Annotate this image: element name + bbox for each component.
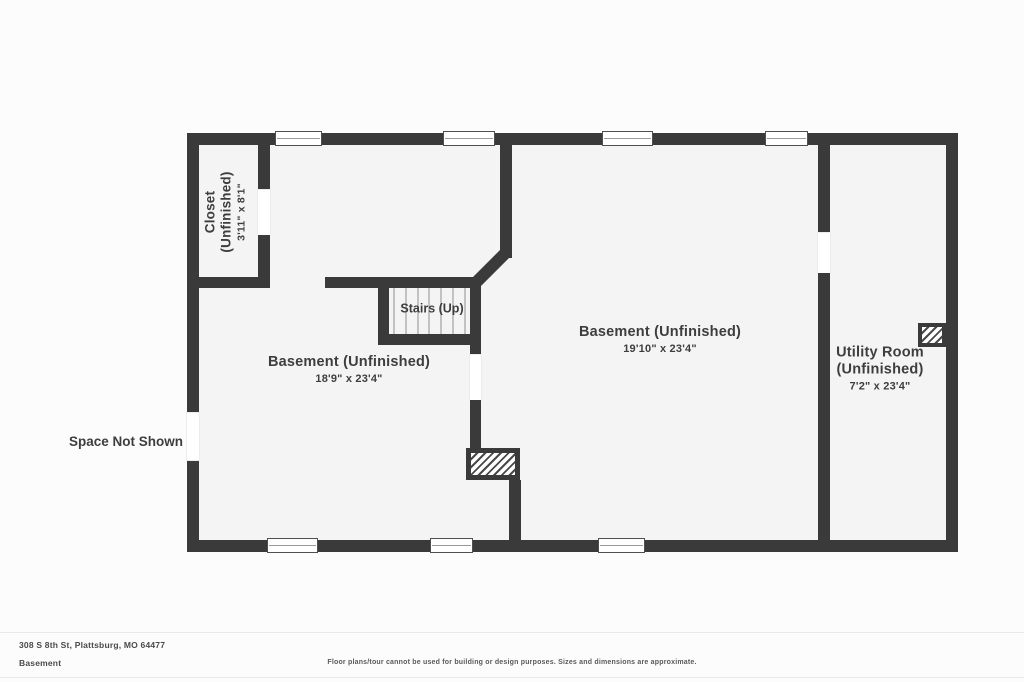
room-name: Basement (Unfinished): [579, 324, 741, 341]
space-not-shown-label: Space Not Shown: [69, 434, 183, 450]
room-status: (Unfinished): [218, 171, 234, 252]
window: [602, 131, 653, 146]
wall-stairs-right: [470, 277, 481, 355]
chimney-hatch-box: [466, 448, 520, 480]
room-status: (Unfinished): [836, 362, 924, 379]
utility-hatch-box: [918, 323, 946, 347]
wall-exterior-left-upper: [187, 133, 199, 413]
room-dims: 19'10" x 23'4": [579, 343, 741, 356]
room-name: Basement (Unfinished): [268, 354, 430, 371]
room-dims: 18'9" x 23'4": [268, 373, 430, 386]
wall-utility-divider-upper: [818, 145, 830, 233]
window-pane: [432, 545, 471, 547]
property-address: 308 S 8th St, Plattsburg, MO 64477: [19, 640, 165, 650]
door-opening-basement: [470, 355, 481, 400]
window-pane: [767, 138, 806, 140]
window: [598, 538, 645, 553]
door-opening-utility: [818, 233, 830, 273]
window-pane: [269, 545, 316, 547]
window: [430, 538, 473, 553]
wall-closet-bottom: [187, 277, 270, 288]
stair-tread: [393, 288, 395, 334]
wall-mid-upper-vertical: [500, 145, 512, 258]
wall-exterior-left-lower: [187, 460, 199, 552]
floor-plan-page: Closet (Unfinished) 3'11" x 8'1" Basemen…: [0, 0, 1024, 682]
window: [765, 131, 808, 146]
wall-stairs-top: [325, 277, 481, 288]
window-pane: [277, 138, 320, 140]
window: [275, 131, 322, 146]
window-pane: [600, 545, 643, 547]
disclaimer-text: Floor plans/tour cannot be used for buil…: [0, 659, 1024, 666]
room-dims: 7'2" x 23'4": [836, 381, 924, 394]
wall-mid-lower-upper-seg: [470, 400, 481, 448]
room-label-basement-main: Basement (Unfinished) 19'10" x 23'4": [579, 324, 741, 356]
wall-mid-lower-bottom-seg: [509, 480, 521, 540]
opening-space-not-shown: [187, 413, 199, 460]
window: [267, 538, 318, 553]
stairs-label: Stairs (Up): [400, 302, 463, 317]
wall-exterior-right: [946, 133, 958, 552]
room-label-utility: Utility Room (Unfinished) 7'2" x 23'4": [836, 344, 924, 393]
door-opening-closet: [258, 190, 270, 235]
window: [443, 131, 495, 146]
stair-tread: [464, 288, 466, 334]
plan-interior: [199, 145, 946, 540]
room-label-closet: Closet (Unfinished) 3'11" x 8'1": [202, 171, 247, 252]
room-dims: 3'11" x 8'1": [235, 171, 247, 252]
wall-stairs-bottom: [378, 334, 481, 345]
window-pane: [604, 138, 651, 140]
room-name: Utility Room: [836, 344, 924, 361]
footer-bottom-divider: [0, 677, 1024, 678]
room-name: Closet: [202, 171, 218, 252]
wall-utility-divider-lower: [818, 273, 830, 540]
room-label-basement-left: Basement (Unfinished) 18'9" x 23'4": [268, 354, 430, 386]
footer-top-divider: [0, 632, 1024, 633]
wall-closet-right-upper: [258, 145, 270, 190]
window-pane: [445, 138, 493, 140]
